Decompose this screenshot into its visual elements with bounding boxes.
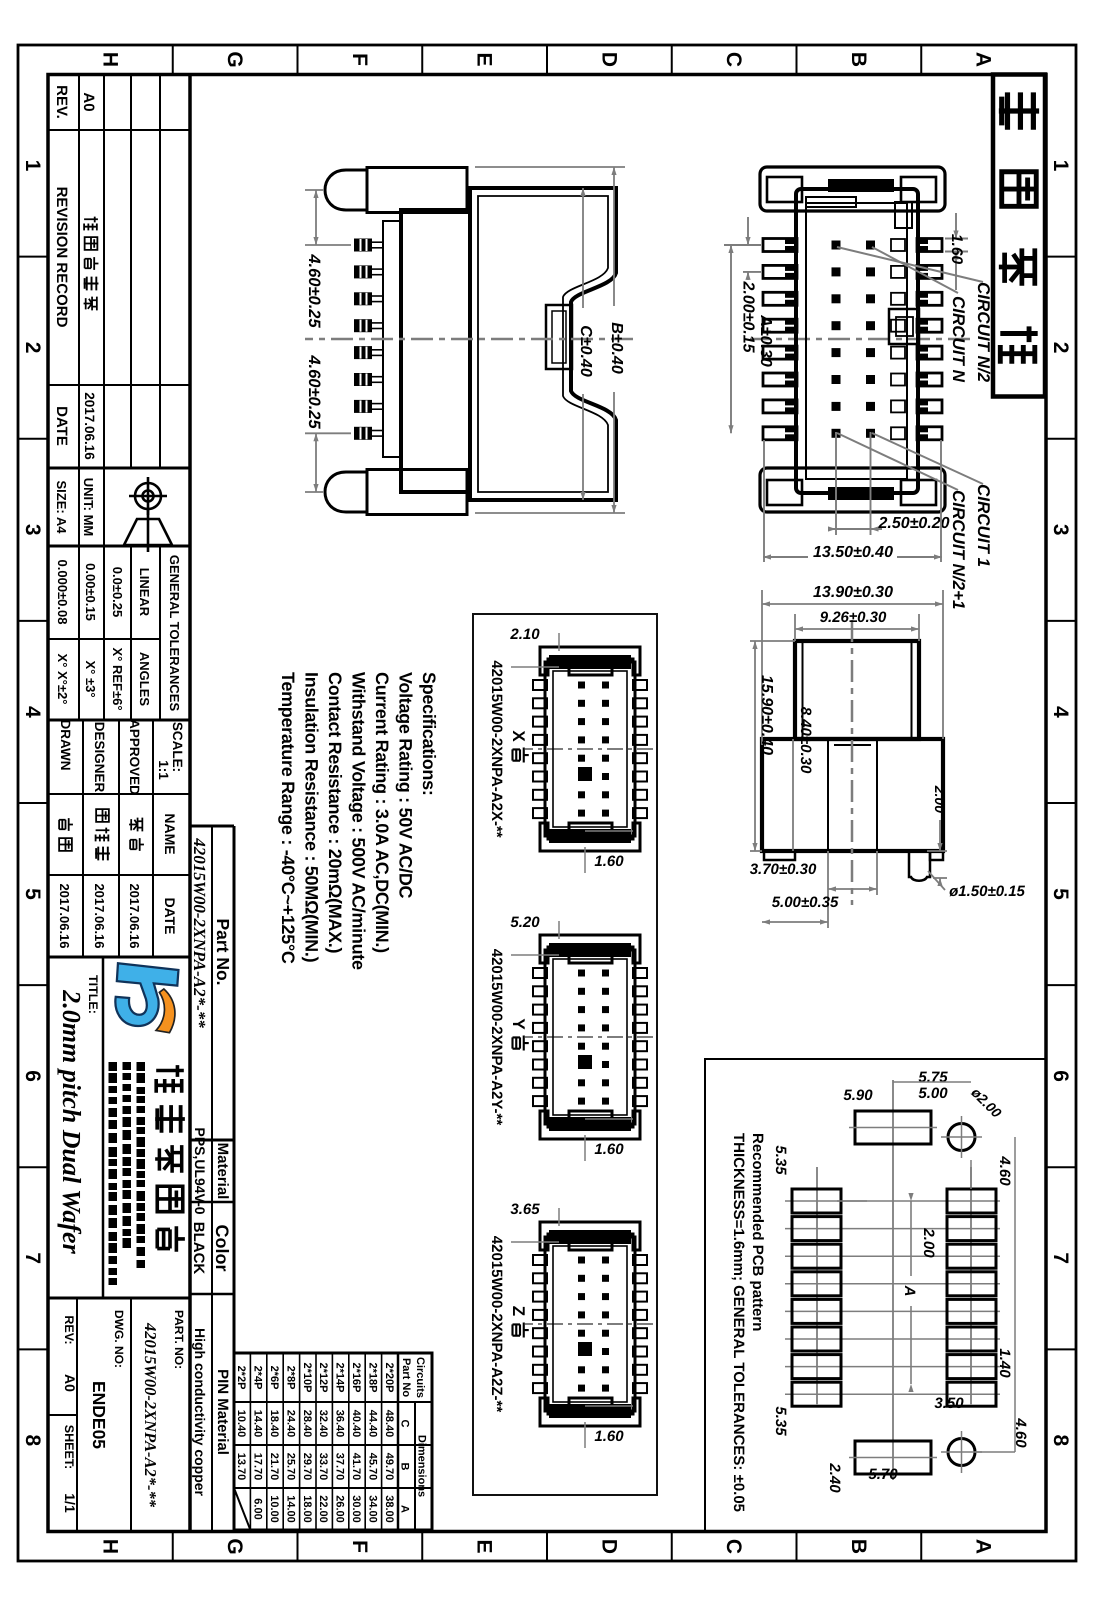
svg-text:Y: Y: [509, 1018, 528, 1030]
svg-text:SHEET:: SHEET:: [62, 1425, 76, 1469]
svg-text:PART. NO:: PART. NO:: [172, 1310, 186, 1369]
svg-text:32.40: 32.40: [317, 1410, 329, 1438]
svg-text:B: B: [847, 1539, 870, 1554]
svg-text:15.90±0.40: 15.90±0.40: [758, 675, 775, 755]
svg-text:Part No.: Part No.: [213, 918, 233, 985]
svg-text:B±0.40: B±0.40: [608, 322, 625, 374]
svg-text:1/1: 1/1: [62, 1493, 78, 1513]
svg-text:2*12P: 2*12P: [317, 1363, 329, 1393]
svg-text:3.70±0.30: 3.70±0.30: [750, 861, 817, 878]
svg-text:ø1.50±0.15: ø1.50±0.15: [949, 883, 1025, 900]
svg-text:38.00: 38.00: [383, 1495, 395, 1523]
svg-text:42015W00-2XNPA-A2*-**: 42015W00-2XNPA-A2*-**: [141, 1322, 160, 1508]
svg-text:2*6P: 2*6P: [268, 1366, 280, 1390]
svg-text:Specifications:: Specifications:: [419, 672, 439, 796]
svg-text:2017.06.16: 2017.06.16: [127, 883, 142, 948]
svg-text:C: C: [399, 1420, 411, 1428]
svg-text:2*10P: 2*10P: [301, 1363, 313, 1393]
svg-text:SIZE: A4: SIZE: A4: [54, 481, 69, 535]
svg-text:High conductivity copper: High conductivity copper: [192, 1328, 208, 1497]
svg-text:Material: Material: [214, 1143, 231, 1200]
svg-text:A±0.30: A±0.30: [757, 314, 774, 367]
svg-text:2.50±0.20: 2.50±0.20: [877, 515, 949, 532]
svg-text:3: 3: [1049, 524, 1072, 536]
svg-text:42015W00-2XNPA-A2X-**: 42015W00-2XNPA-A2X-**: [488, 660, 505, 837]
svg-text:0.0±0.25: 0.0±0.25: [110, 567, 125, 618]
svg-text:DESIGNER: DESIGNER: [92, 722, 107, 793]
svg-text:1: 1: [21, 160, 44, 172]
svg-text:25.70: 25.70: [284, 1453, 296, 1481]
svg-text:Insulation Resistance : 50MΩ(M: Insulation Resistance : 50MΩ(MIN.): [302, 672, 322, 963]
svg-text:CIRCUIT N: CIRCUIT N: [949, 296, 968, 383]
svg-text:8: 8: [21, 1435, 44, 1447]
svg-text:5.00: 5.00: [918, 1085, 948, 1102]
svg-text:CIRCUIT N/2: CIRCUIT N/2: [974, 282, 993, 383]
svg-text:ENDE05: ENDE05: [89, 1381, 109, 1449]
svg-text:1.60: 1.60: [594, 1428, 624, 1445]
svg-text:Color: Color: [212, 1225, 232, 1272]
svg-text:4.60: 4.60: [996, 1155, 1013, 1186]
svg-text:2*18P: 2*18P: [366, 1363, 378, 1393]
svg-text:2*8P: 2*8P: [284, 1366, 296, 1390]
svg-text:Z: Z: [509, 1306, 528, 1316]
svg-text:13.70: 13.70: [235, 1453, 247, 1481]
svg-text:36.40: 36.40: [334, 1410, 346, 1438]
svg-text:ANGLES: ANGLES: [137, 652, 152, 707]
svg-text:A: A: [901, 1285, 918, 1297]
svg-text:ø2.00: ø2.00: [968, 1084, 1005, 1121]
svg-text:18.40: 18.40: [268, 1410, 280, 1438]
svg-text:2017.06.16: 2017.06.16: [57, 883, 72, 948]
svg-text:6.00: 6.00: [252, 1498, 264, 1519]
svg-text:8.40±0.30: 8.40±0.30: [797, 707, 814, 774]
svg-text:5: 5: [1049, 888, 1072, 900]
svg-text:44.40: 44.40: [366, 1410, 378, 1438]
svg-text:X° X°±2°: X° X°±2°: [55, 654, 70, 705]
svg-text:B: B: [847, 52, 870, 67]
svg-text:5.00±0.35: 5.00±0.35: [772, 894, 839, 911]
svg-text:UNIT: MM: UNIT: MM: [81, 478, 96, 537]
svg-text:PIN Material: PIN Material: [214, 1369, 231, 1455]
svg-text:H: H: [98, 1539, 121, 1554]
svg-text:42015W00-2XNPA-A2Y-**: 42015W00-2XNPA-A2Y-**: [488, 949, 505, 1126]
svg-text:41.70: 41.70: [350, 1453, 362, 1481]
svg-text:2: 2: [21, 342, 44, 354]
svg-text:X° ±3°: X° ±3°: [83, 660, 98, 697]
svg-text:Circuits: Circuits: [414, 1357, 426, 1398]
svg-text:40.40: 40.40: [350, 1410, 362, 1438]
svg-text:C: C: [722, 52, 745, 67]
svg-text:CIRCUIT 1: CIRCUIT 1: [974, 484, 993, 567]
svg-text:48.40: 48.40: [383, 1410, 395, 1438]
svg-text:C: C: [722, 1539, 745, 1554]
svg-text:26.00: 26.00: [334, 1495, 346, 1523]
svg-text:A0: A0: [62, 1374, 78, 1392]
svg-text:Withstand Voltage : 500V AC/mi: Withstand Voltage : 500V AC/minute: [349, 672, 369, 970]
svg-text:13.50±0.40: 13.50±0.40: [813, 544, 893, 561]
svg-text:1.40: 1.40: [996, 1348, 1013, 1378]
svg-text:0.00±0.15: 0.00±0.15: [83, 563, 98, 621]
svg-text:2*4P: 2*4P: [252, 1366, 264, 1390]
svg-text:TITLE:: TITLE:: [86, 975, 100, 1014]
svg-text:Voltage Rating : 50V AC/DC: Voltage Rating : 50V AC/DC: [396, 672, 416, 899]
svg-text:Part No: Part No: [400, 1358, 412, 1397]
svg-text:REV:: REV:: [62, 1315, 76, 1344]
svg-text:6: 6: [21, 1070, 44, 1082]
svg-text:REVISION RECORD: REVISION RECORD: [53, 187, 70, 328]
svg-text:DWG. NO:: DWG. NO:: [112, 1310, 126, 1368]
svg-text:D: D: [597, 52, 620, 67]
svg-text:0.000±0.08: 0.000±0.08: [55, 560, 70, 625]
svg-text:F: F: [348, 53, 371, 66]
svg-text:7: 7: [1049, 1252, 1072, 1264]
svg-text:E: E: [473, 52, 496, 66]
svg-text:C±0.40: C±0.40: [577, 325, 594, 377]
svg-text:3.65: 3.65: [510, 1201, 540, 1218]
svg-text:2.40: 2.40: [826, 1462, 843, 1493]
svg-text:NAME: NAME: [162, 813, 178, 854]
svg-text:10.40: 10.40: [235, 1410, 247, 1438]
svg-text:G: G: [223, 1538, 246, 1554]
svg-text:6: 6: [1049, 1070, 1072, 1082]
svg-text:10.00: 10.00: [268, 1495, 280, 1523]
svg-text:22.00: 22.00: [317, 1495, 329, 1523]
svg-text:1.60: 1.60: [594, 853, 624, 870]
svg-text:4.60±0.25: 4.60±0.25: [305, 253, 323, 328]
svg-text:E: E: [473, 1539, 496, 1553]
svg-text:2: 2: [1049, 342, 1072, 354]
svg-text:LINEAR: LINEAR: [137, 568, 152, 617]
svg-text:49.70: 49.70: [383, 1453, 395, 1481]
svg-text:5.90: 5.90: [843, 1087, 873, 1104]
svg-text:GENERAL TOLERANCES: GENERAL TOLERANCES: [167, 555, 182, 712]
svg-text:BLACK: BLACK: [190, 1222, 207, 1275]
svg-text:5.75: 5.75: [918, 1069, 948, 1086]
svg-text:2*14P: 2*14P: [334, 1363, 346, 1393]
svg-text:A: A: [972, 1539, 995, 1554]
svg-text:X° REF±6°: X° REF±6°: [110, 647, 125, 710]
svg-text:3: 3: [21, 524, 44, 536]
svg-text:21.70: 21.70: [268, 1453, 280, 1481]
svg-text:B: B: [399, 1463, 411, 1471]
svg-text:1.60: 1.60: [594, 1141, 624, 1158]
svg-text:33.70: 33.70: [317, 1453, 329, 1481]
svg-text:Temperature Range : -40°C~+125: Temperature Range : -40°C~+125°C: [278, 672, 298, 964]
svg-text:Dimensions: Dimensions: [416, 1435, 428, 1497]
svg-text:1.60: 1.60: [948, 234, 965, 265]
svg-text:SCALE:: SCALE:: [170, 722, 185, 772]
svg-text:D: D: [597, 1539, 620, 1554]
svg-text:24.40: 24.40: [284, 1410, 296, 1438]
svg-text:Recommended PCB pattern: Recommended PCB pattern: [749, 1133, 766, 1331]
svg-text:14.00: 14.00: [284, 1495, 296, 1523]
svg-text:X: X: [509, 730, 528, 742]
svg-text:4: 4: [21, 706, 44, 718]
svg-text:3.50: 3.50: [934, 1395, 964, 1412]
svg-text:5: 5: [21, 888, 44, 900]
svg-text:1: 1: [1049, 160, 1072, 172]
svg-text:2017.06.16: 2017.06.16: [92, 883, 107, 948]
svg-text:28.40: 28.40: [301, 1410, 313, 1438]
svg-text:4.60±0.25: 4.60±0.25: [305, 354, 323, 429]
svg-text:42015W00-2XNPA-A2Z-**: 42015W00-2XNPA-A2Z-**: [488, 1236, 505, 1413]
svg-text:THICKNESS=1.6mm; GENERAL TOLER: THICKNESS=1.6mm; GENERAL TOLERANCES: ±0.…: [730, 1133, 747, 1512]
svg-text:2.00: 2.00: [920, 1227, 937, 1258]
svg-text:2.00: 2.00: [932, 785, 948, 813]
svg-text:2*20P: 2*20P: [383, 1363, 395, 1393]
svg-text:A: A: [399, 1505, 411, 1513]
svg-text:1:1: 1:1: [156, 760, 171, 780]
svg-text:APPROVED: APPROVED: [127, 719, 142, 795]
svg-text:DATE: DATE: [53, 406, 70, 446]
svg-text:DRAWN: DRAWN: [58, 720, 73, 771]
svg-text:CIRCUIT N/2+1: CIRCUIT N/2+1: [949, 490, 968, 610]
svg-text:37.70: 37.70: [334, 1453, 346, 1481]
svg-text:5.35: 5.35: [772, 1406, 789, 1436]
svg-text:30.00: 30.00: [350, 1495, 362, 1523]
svg-text:13.90±0.30: 13.90±0.30: [813, 584, 893, 601]
svg-text:2.0mm pitch Dual Wafer: 2.0mm pitch Dual Wafer: [57, 989, 86, 1254]
svg-text:DATE: DATE: [162, 897, 178, 934]
svg-text:5.70: 5.70: [868, 1466, 898, 1483]
svg-text:2.00±0.15: 2.00±0.15: [740, 280, 757, 353]
svg-text:G: G: [223, 51, 246, 67]
svg-text:5.35: 5.35: [772, 1145, 789, 1175]
svg-text:42015W00-2XNPA-A2*-**: 42015W00-2XNPA-A2*-**: [190, 837, 209, 1028]
svg-text:F: F: [348, 1540, 371, 1553]
svg-text:A: A: [972, 52, 995, 67]
svg-text:45.70: 45.70: [366, 1453, 378, 1481]
svg-text:Contact Resistance : 20mΩ(MAX.: Contact Resistance : 20mΩ(MAX.): [325, 672, 345, 954]
svg-text:2*16P: 2*16P: [350, 1363, 362, 1393]
svg-text:PPS,UL94V-0: PPS,UL94V-0: [192, 1127, 208, 1214]
svg-text:2017.06.16: 2017.06.16: [82, 392, 97, 460]
svg-text:17.70: 17.70: [252, 1453, 264, 1481]
svg-text:7: 7: [21, 1252, 44, 1264]
svg-text:Current Rating : 3.0A AC,DC(MI: Current Rating : 3.0A AC,DC(MIN.): [372, 672, 392, 953]
svg-text:2*2P: 2*2P: [235, 1366, 247, 1390]
svg-text:9.26±0.30: 9.26±0.30: [820, 609, 887, 626]
svg-text:18.00: 18.00: [301, 1495, 313, 1523]
svg-text:REV.: REV.: [53, 85, 70, 119]
svg-text:8: 8: [1049, 1435, 1072, 1447]
svg-text:A0: A0: [80, 92, 97, 111]
svg-text:29.70: 29.70: [301, 1453, 313, 1481]
svg-text:H: H: [98, 52, 121, 67]
svg-text:14.40: 14.40: [252, 1410, 264, 1438]
svg-text:4: 4: [1049, 706, 1072, 718]
svg-text:5.20: 5.20: [510, 914, 540, 931]
svg-text:2.10: 2.10: [509, 626, 540, 643]
svg-text:34.00: 34.00: [366, 1495, 378, 1523]
